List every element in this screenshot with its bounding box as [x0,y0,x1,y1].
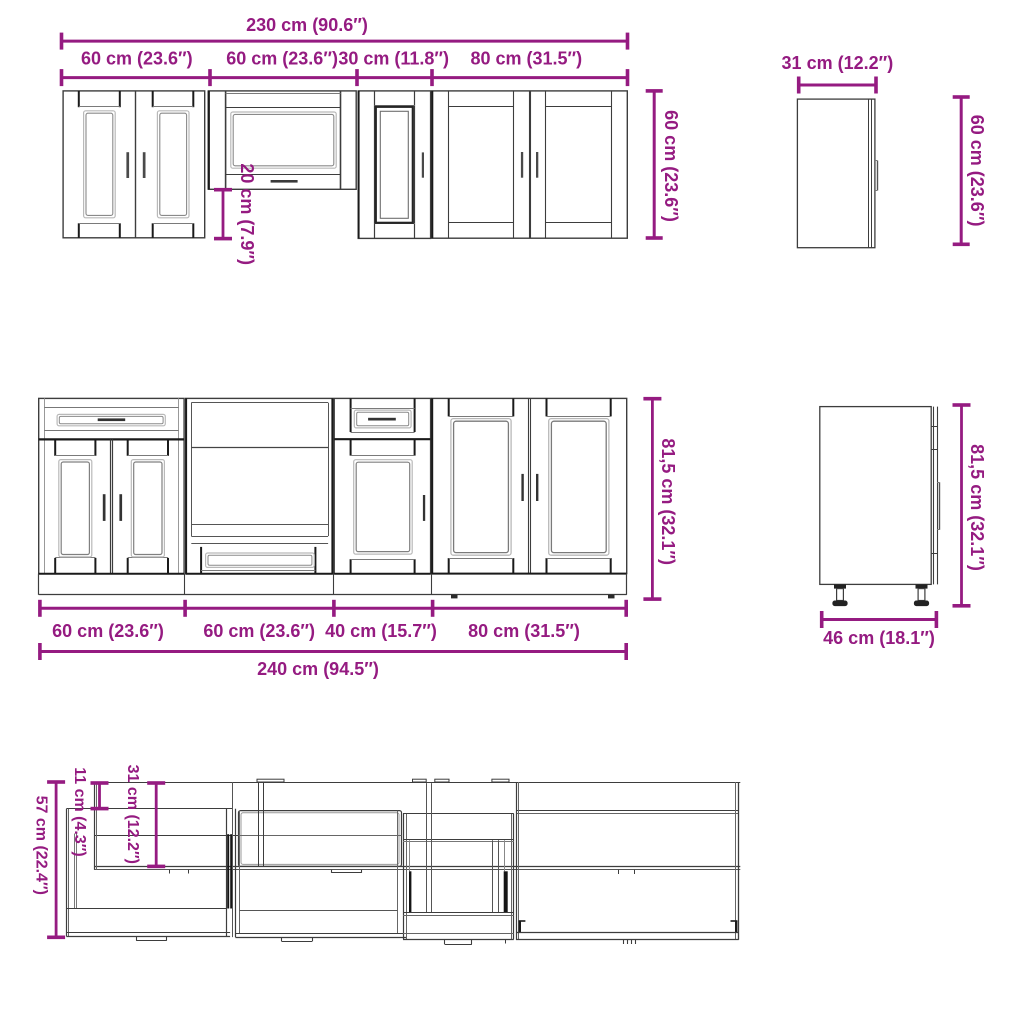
svg-text:57 cm (22.4″): 57 cm (22.4″) [32,796,49,895]
svg-text:20 cm (7.9″): 20 cm (7.9″) [237,163,257,265]
svg-text:60 cm (23.6″): 60 cm (23.6″) [967,115,987,227]
svg-text:60 cm (23.6″): 60 cm (23.6″) [52,621,164,641]
svg-text:11 cm (4.3″): 11 cm (4.3″) [71,767,88,857]
svg-text:81,5 cm (32.1″): 81,5 cm (32.1″) [658,438,678,565]
svg-text:30 cm (11.8″): 30 cm (11.8″) [338,49,449,69]
svg-text:230 cm (90.6″): 230 cm (90.6″) [246,15,368,35]
svg-text:240 cm (94.5″): 240 cm (94.5″) [257,659,379,679]
svg-text:46 cm (18.1″): 46 cm (18.1″) [823,628,935,648]
svg-text:80 cm (31.5″): 80 cm (31.5″) [470,49,582,69]
svg-text:31 cm (12.2″): 31 cm (12.2″) [782,53,894,73]
svg-text:60 cm (23.6″): 60 cm (23.6″) [226,49,338,69]
svg-text:40 cm (15.7″): 40 cm (15.7″) [325,621,437,641]
svg-text:81,5 cm (32.1″): 81,5 cm (32.1″) [967,444,987,571]
svg-text:60 cm (23.6″): 60 cm (23.6″) [661,110,681,222]
svg-text:60 cm (23.6″): 60 cm (23.6″) [203,621,315,641]
svg-text:80 cm (31.5″): 80 cm (31.5″) [468,621,580,641]
svg-text:31 cm (12.2″): 31 cm (12.2″) [124,765,141,864]
svg-text:60 cm (23.6″): 60 cm (23.6″) [81,49,193,69]
